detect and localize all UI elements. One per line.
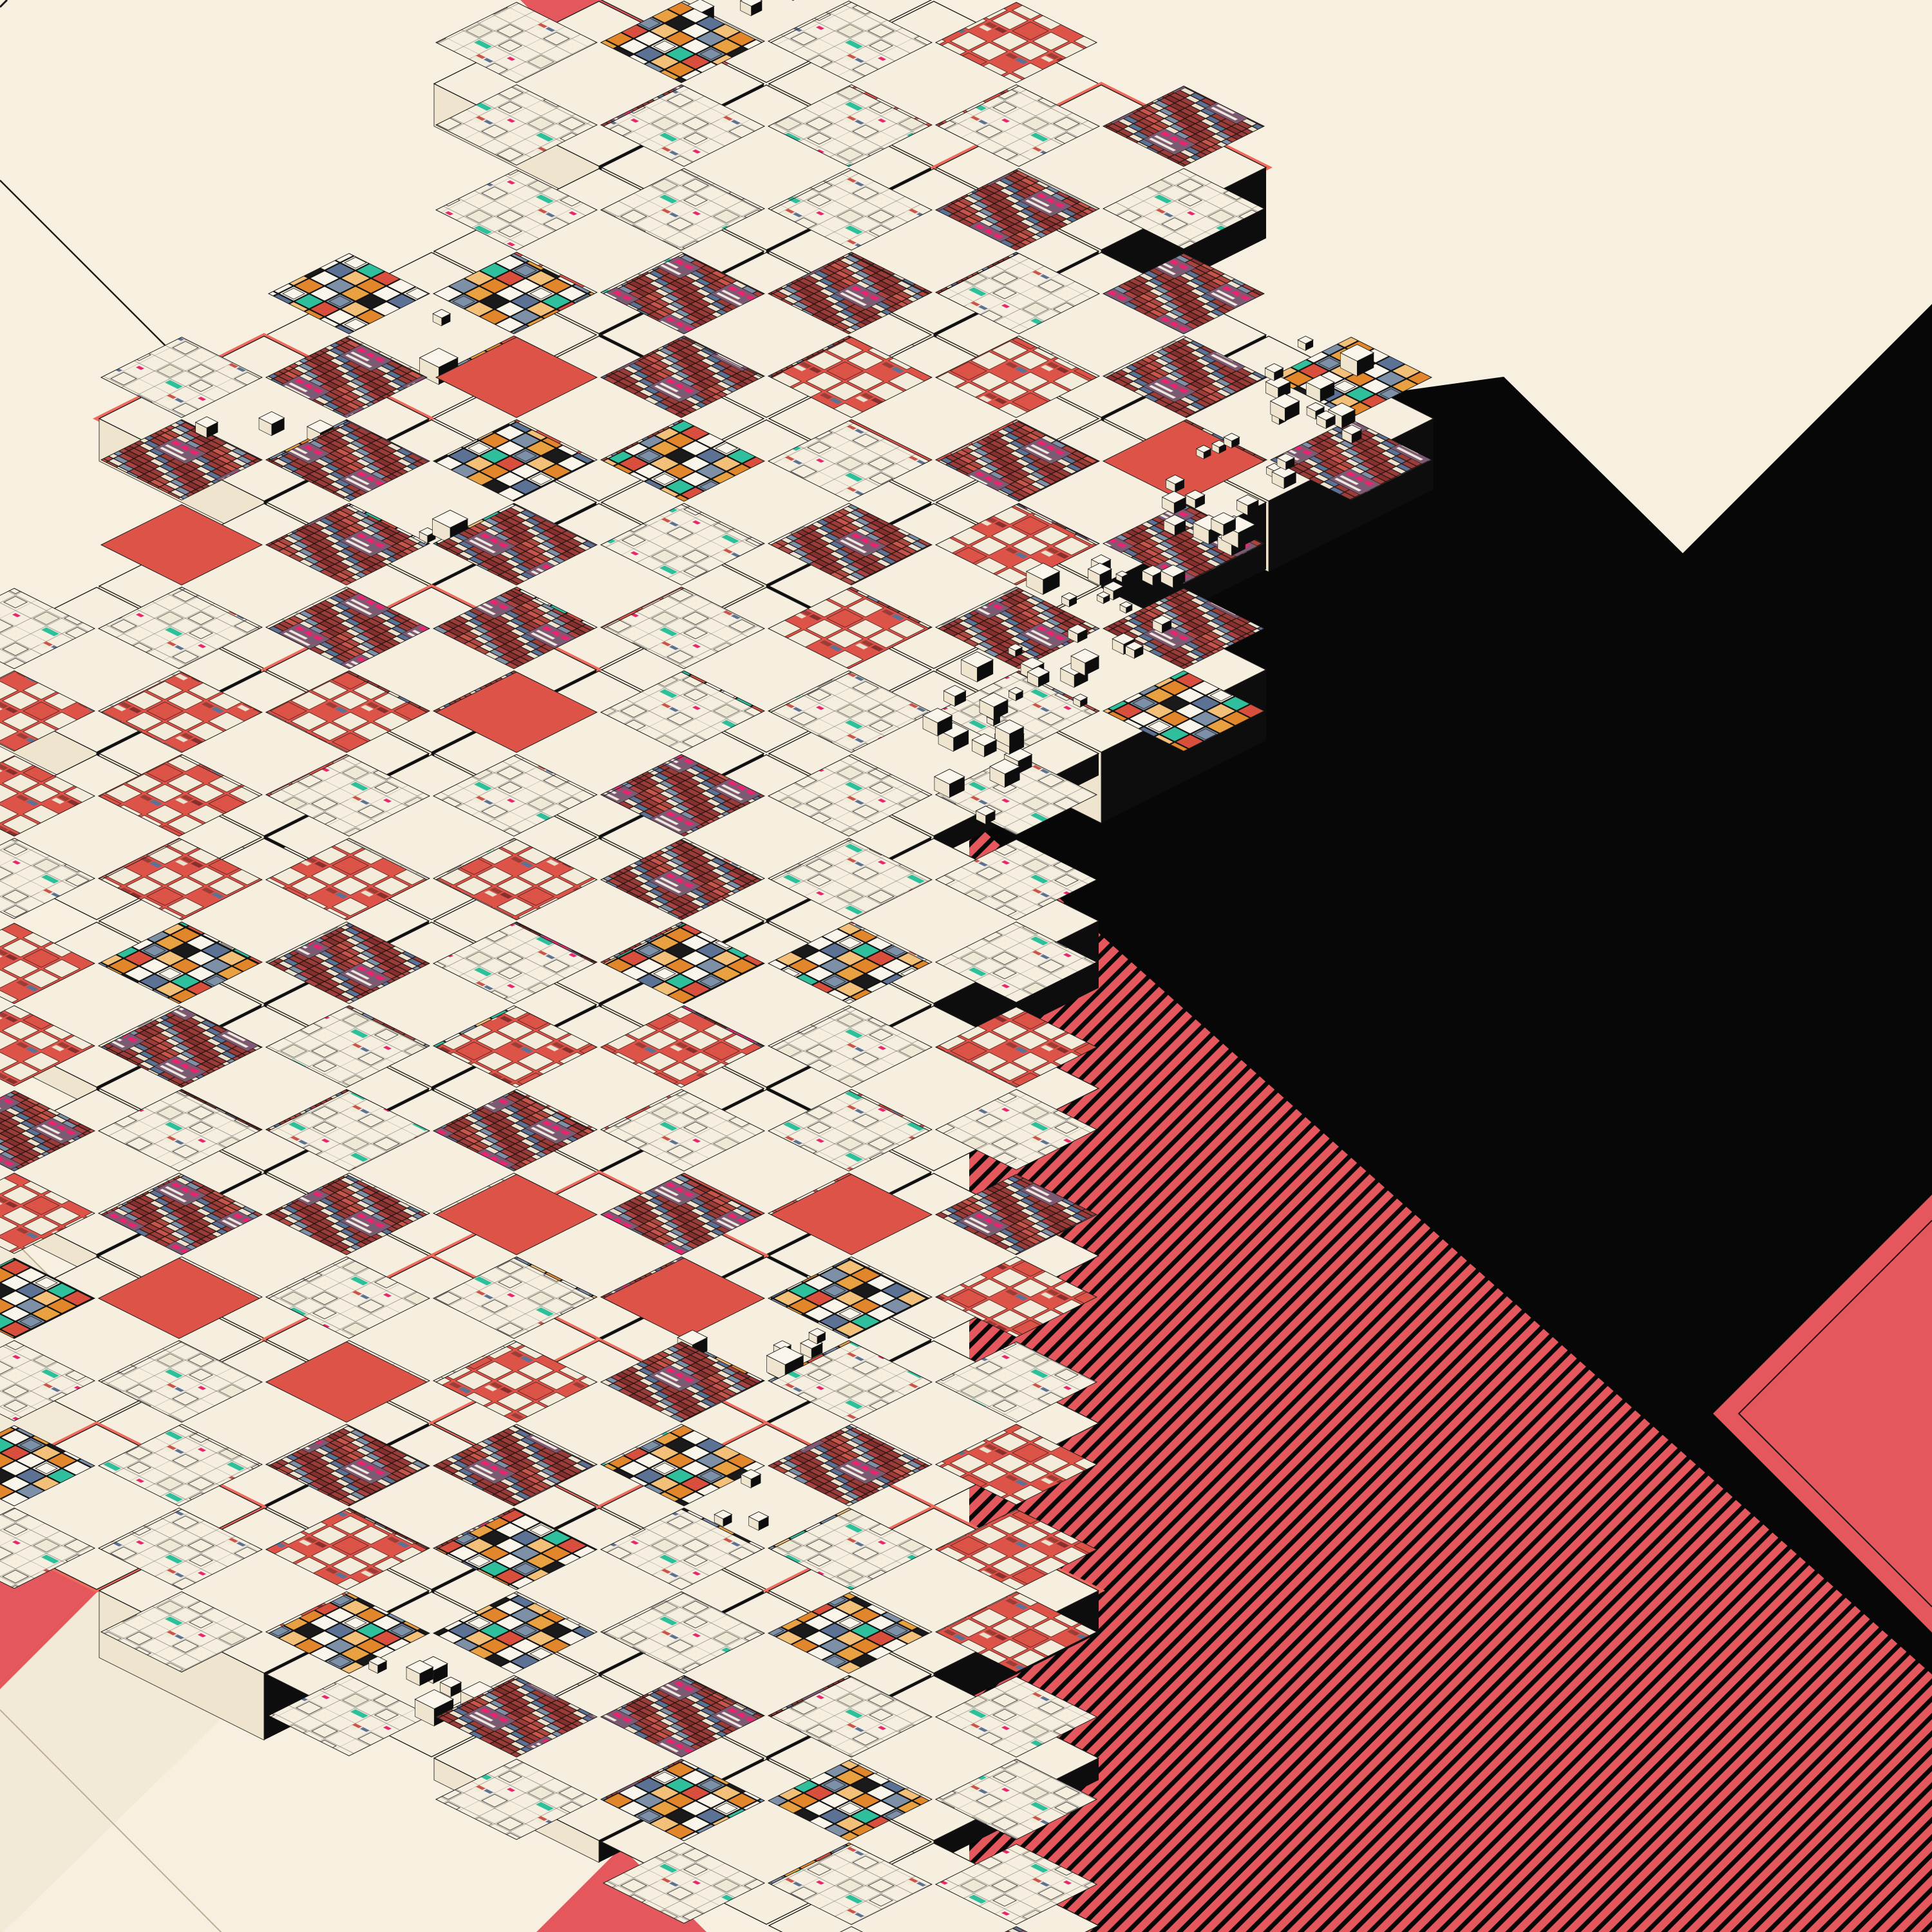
artwork-canvas <box>0 0 1932 1932</box>
artwork-svg <box>0 0 1932 1932</box>
